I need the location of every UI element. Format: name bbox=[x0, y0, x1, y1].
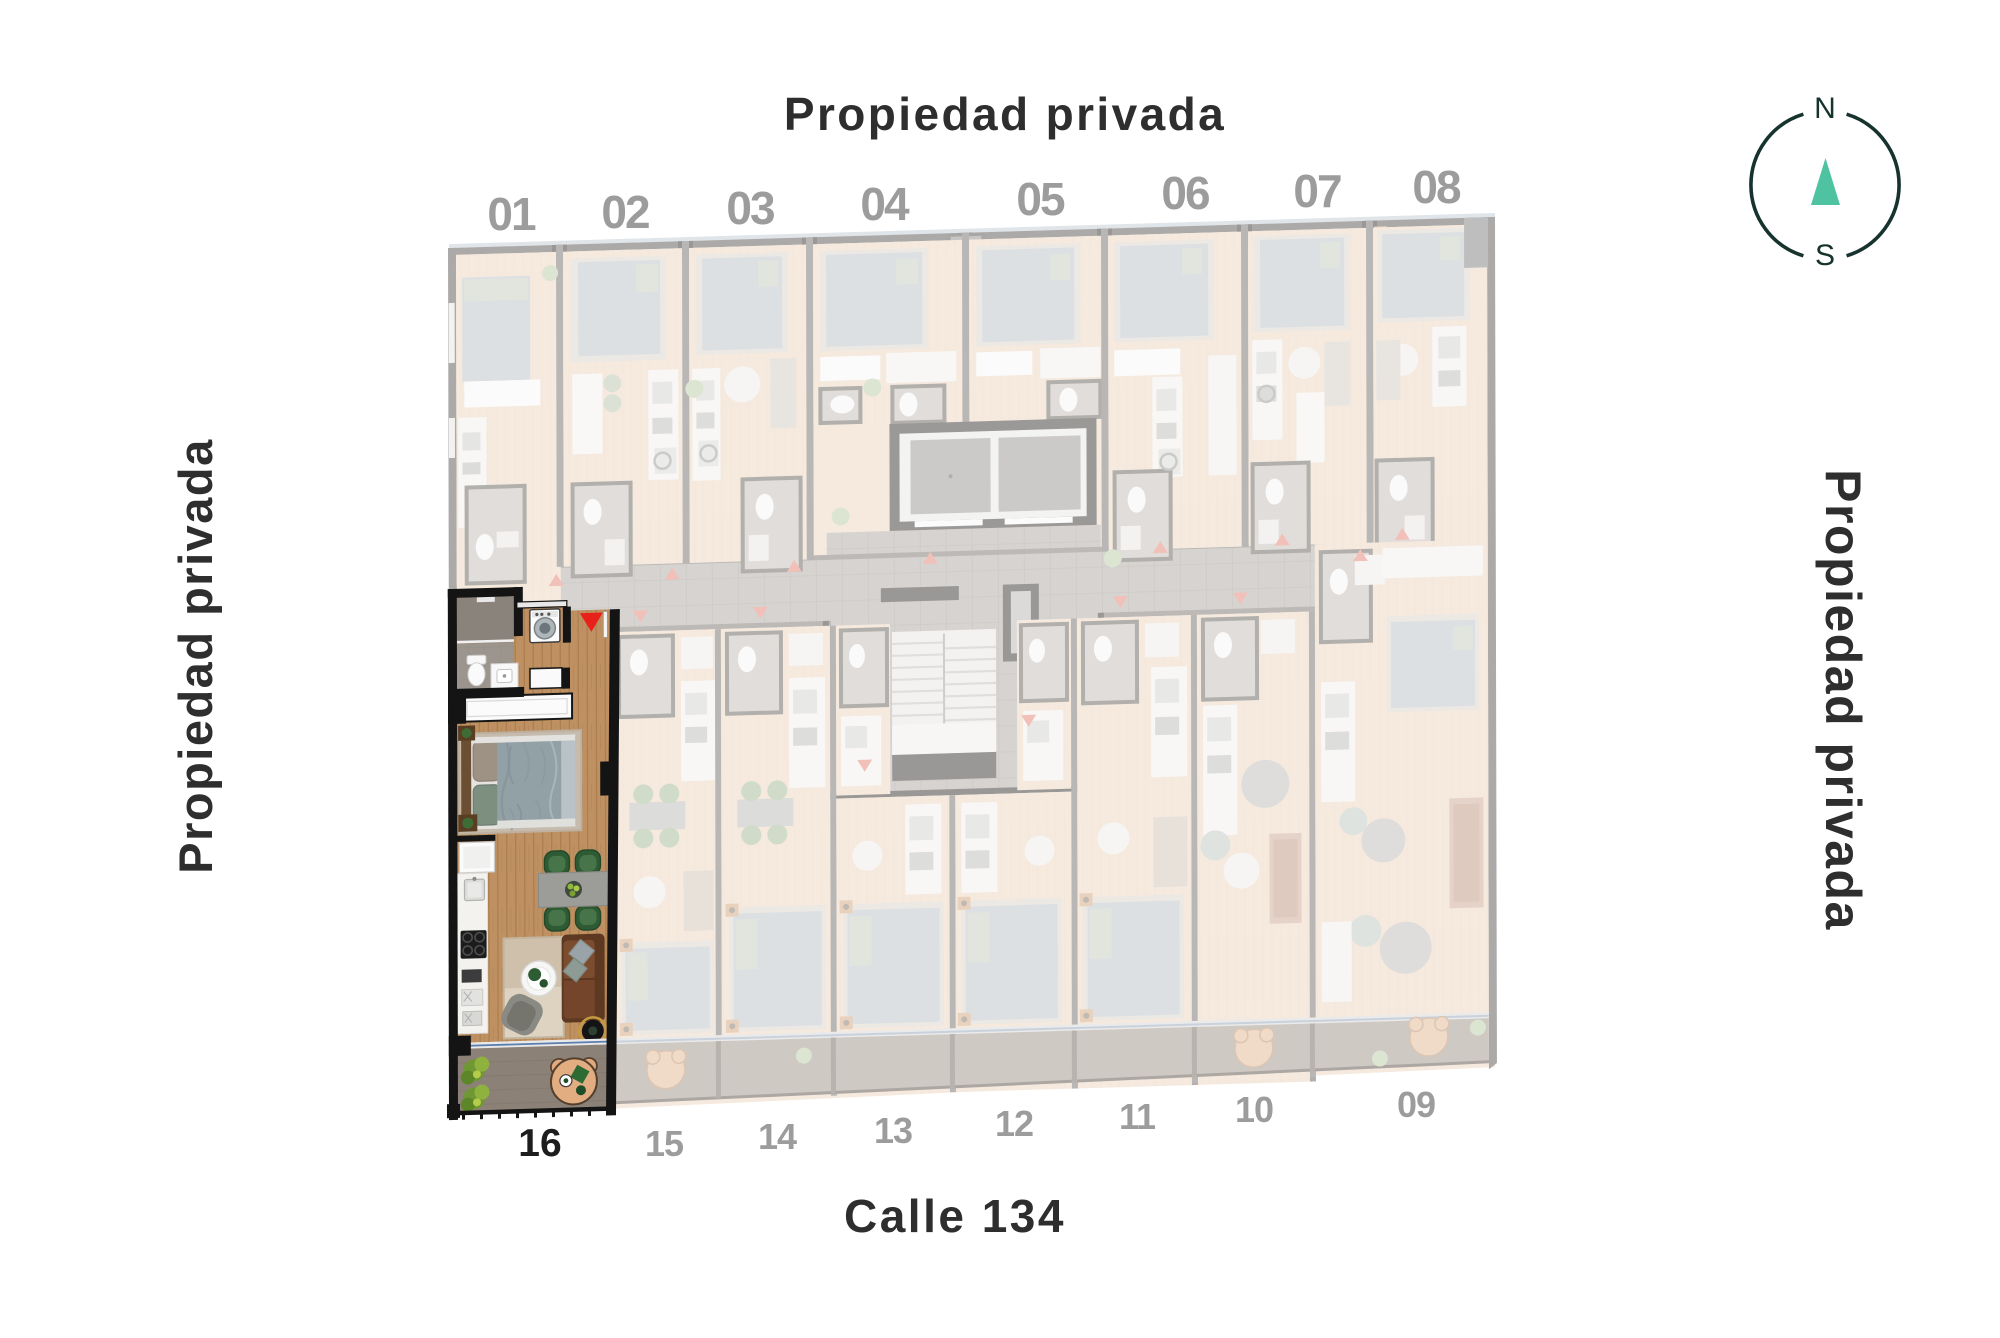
svg-text:08: 08 bbox=[1412, 161, 1461, 213]
svg-text:S: S bbox=[1815, 239, 1835, 272]
svg-text:12: 12 bbox=[995, 1103, 1033, 1144]
svg-text:N: N bbox=[1814, 92, 1836, 125]
svg-text:Calle 134: Calle 134 bbox=[844, 1190, 1066, 1242]
svg-text:16: 16 bbox=[518, 1122, 561, 1165]
svg-text:10: 10 bbox=[1235, 1089, 1273, 1130]
svg-text:Propiedad privada: Propiedad privada bbox=[1815, 469, 1871, 931]
svg-text:Propiedad privada: Propiedad privada bbox=[784, 88, 1226, 140]
svg-text:04: 04 bbox=[860, 178, 910, 230]
svg-text:14: 14 bbox=[758, 1116, 797, 1157]
svg-text:Propiedad privada: Propiedad privada bbox=[169, 438, 222, 874]
svg-text:05: 05 bbox=[1016, 173, 1065, 225]
svg-text:13: 13 bbox=[874, 1110, 912, 1151]
svg-text:02: 02 bbox=[601, 186, 649, 238]
svg-text:06: 06 bbox=[1161, 167, 1209, 219]
svg-text:15: 15 bbox=[645, 1123, 684, 1164]
svg-text:03: 03 bbox=[726, 182, 774, 234]
svg-text:07: 07 bbox=[1293, 165, 1341, 217]
svg-text:01: 01 bbox=[487, 188, 536, 240]
svg-text:09: 09 bbox=[1397, 1084, 1435, 1125]
svg-text:11: 11 bbox=[1119, 1096, 1156, 1137]
